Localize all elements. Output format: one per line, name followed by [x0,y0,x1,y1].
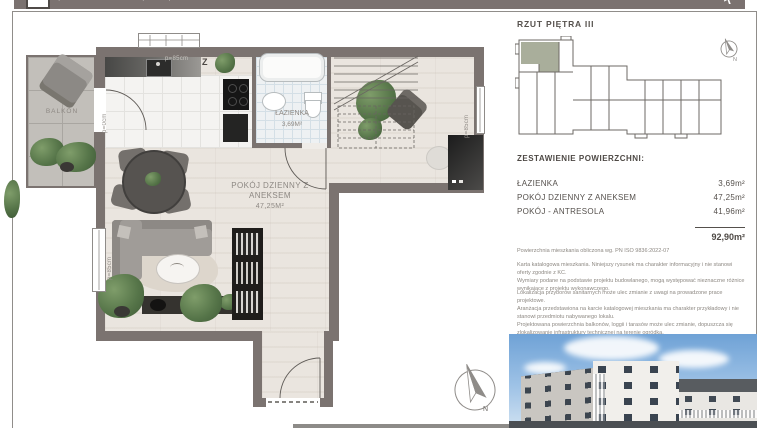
total-divider [695,227,745,228]
row-value: 41,96m² [714,207,745,216]
highlighted-unit [521,42,559,72]
mini-compass-n-label: N [733,57,737,63]
stairs [334,56,418,148]
summary-row: ŁAZIENKA 3,69m² [517,179,745,188]
disclaimer-line: Lokalizacja przyborów sanitarnych może u… [517,290,747,306]
summary-heading: ZESTAWIENIE POWIERZCHNI: [517,154,644,163]
disclaimer-line: Aranżacja przedstawiona na karcie katalo… [517,306,747,322]
cloud [564,336,659,360]
row-label: POKÓJ DZIENNY Z ANEKSEM [517,193,636,202]
summary-table: ŁAZIENKA 3,69m² POKÓJ DZIENNY Z ANEKSEM … [517,179,745,216]
disclaimer-line: Karta katalogowa mieszkania. Niniejszy r… [517,262,747,278]
entrance-door-arc [280,358,320,398]
row-label: POKÓJ - ANTRESOLA [517,207,604,216]
bottom-strip [293,424,509,428]
building-photo [509,334,757,428]
floor-plan-label: RZUT PIĘTRA III [517,19,594,29]
summary-row: POKÓJ - ANTRESOLA 41,96m² [517,207,745,216]
summary-row: POKÓJ DZIENNY Z ANEKSEM 47,25m² [517,193,745,202]
measurement-note: Powierzchnia mieszkania obliczona wg. PN… [517,248,747,256]
disclaimer-paragraph: Lokalizacja przyborów sanitarnych może u… [517,290,747,338]
row-label: ŁAZIENKA [517,179,558,188]
row-value: 3,69m² [718,179,745,188]
row-value: 47,25m² [714,193,745,202]
balcony-door-arc [106,90,146,130]
building-front-facade [593,361,679,428]
floorplan-sheet: sprzedaz@tabordevelopment.pl Siechnice, … [0,0,760,428]
building-roof-band [679,379,757,392]
compass-icon [448,358,501,415]
building-balconies [679,410,757,418]
building-base [509,421,757,428]
building-balconies [593,374,605,428]
mini-floorplan [515,36,727,142]
total-area: 92,90m² [645,232,745,242]
door-arcs [106,90,326,402]
building-side-facade [521,368,593,428]
bathroom-door-arc [285,148,326,189]
compass-n-label: N [483,406,488,413]
window-details [99,35,480,290]
